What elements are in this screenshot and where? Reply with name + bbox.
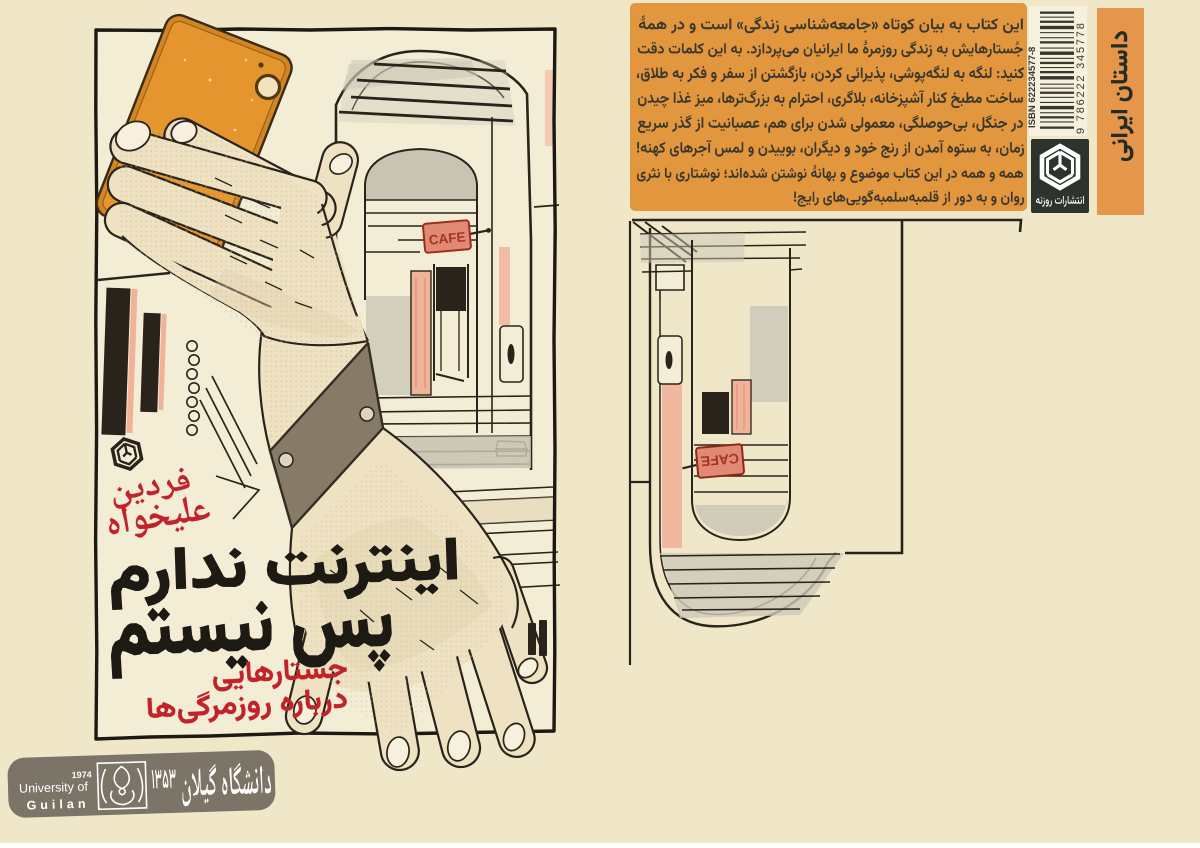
svg-text:CAFE: CAFE: [700, 450, 739, 469]
svg-text:CAFE: CAFE: [428, 229, 466, 247]
svg-text:University of: University of: [19, 780, 89, 796]
svg-text:ISBN 622234577-8: ISBN 622234577-8: [1027, 47, 1038, 128]
svg-text:Guilan: Guilan: [26, 797, 89, 813]
svg-text:9 786222 345778: 9 786222 345778: [1075, 21, 1087, 134]
svg-text:1974: 1974: [71, 770, 91, 781]
